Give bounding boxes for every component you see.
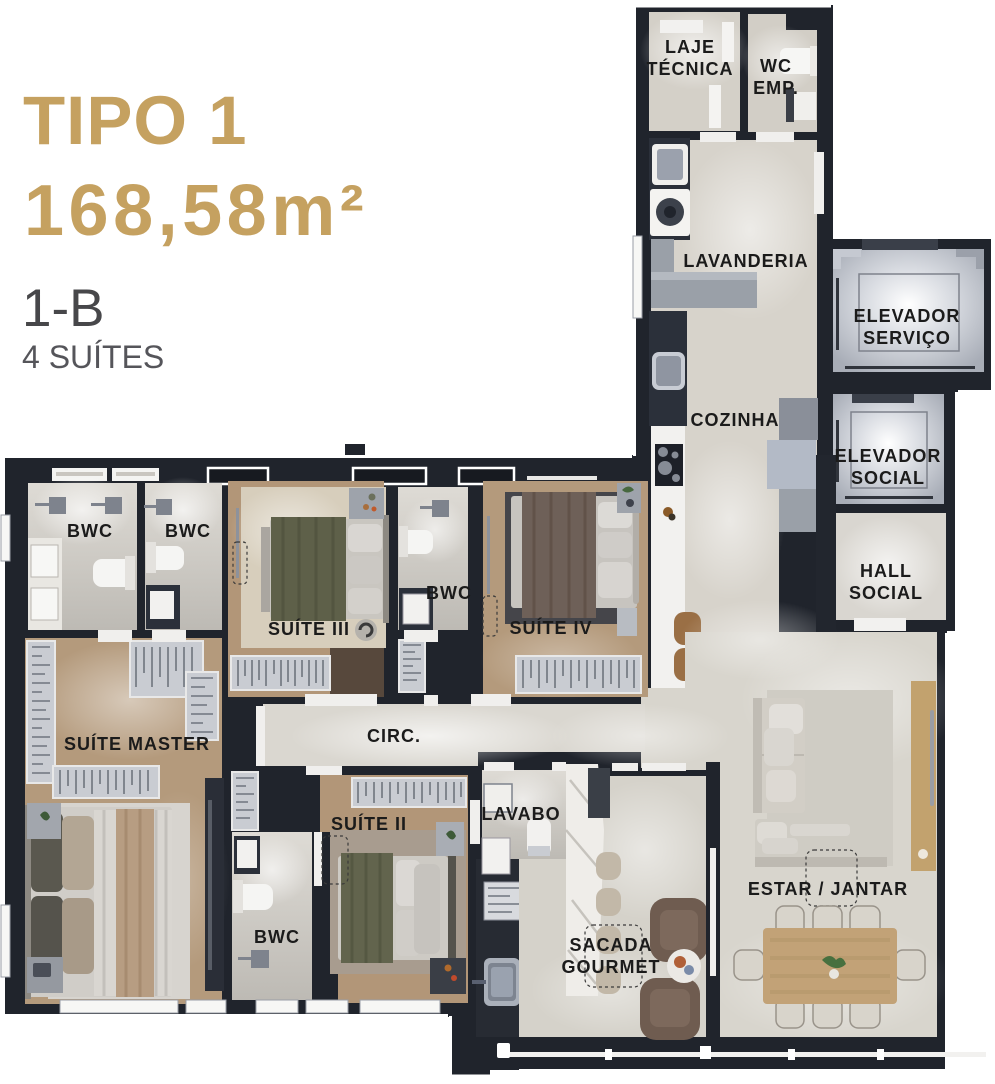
svg-text:SUÍTE III: SUÍTE III: [268, 618, 350, 639]
svg-text:BWC: BWC: [254, 927, 300, 947]
svg-text:WC: WC: [760, 56, 792, 76]
svg-text:SUÍTE MASTER: SUÍTE MASTER: [64, 733, 210, 754]
svg-text:SUÍTE IV: SUÍTE IV: [509, 617, 592, 638]
svg-text:SACADA: SACADA: [569, 935, 652, 955]
svg-text:SOCIAL: SOCIAL: [851, 468, 925, 488]
svg-text:1-B: 1-B: [22, 279, 104, 338]
svg-text:SERVIÇO: SERVIÇO: [863, 328, 951, 348]
svg-text:BWC: BWC: [426, 583, 472, 603]
svg-text:SOCIAL: SOCIAL: [849, 583, 923, 603]
svg-text:COZINHA: COZINHA: [691, 410, 780, 430]
svg-text:CIRC.: CIRC.: [367, 726, 421, 746]
svg-text:ELEVADOR: ELEVADOR: [854, 306, 961, 326]
svg-text:HALL: HALL: [860, 561, 912, 581]
svg-text:TÉCNICA: TÉCNICA: [647, 58, 734, 79]
svg-text:LAVABO: LAVABO: [481, 804, 560, 824]
svg-text:GOURMET: GOURMET: [562, 957, 661, 977]
svg-text:SUÍTE II: SUÍTE II: [331, 813, 407, 834]
svg-text:168,58m²: 168,58m²: [24, 171, 368, 251]
svg-text:LAVANDERIA: LAVANDERIA: [683, 251, 808, 271]
svg-text:BWC: BWC: [165, 521, 211, 541]
svg-text:ELEVADOR: ELEVADOR: [835, 446, 942, 466]
svg-text:LAJE: LAJE: [665, 37, 715, 57]
svg-text:BWC: BWC: [67, 521, 113, 541]
svg-text:TIPO 1: TIPO 1: [23, 82, 248, 159]
svg-text:ESTAR / JANTAR: ESTAR / JANTAR: [748, 879, 908, 899]
svg-text:EMP.: EMP.: [753, 78, 799, 98]
svg-text:4 SUÍTES: 4 SUÍTES: [22, 339, 164, 375]
